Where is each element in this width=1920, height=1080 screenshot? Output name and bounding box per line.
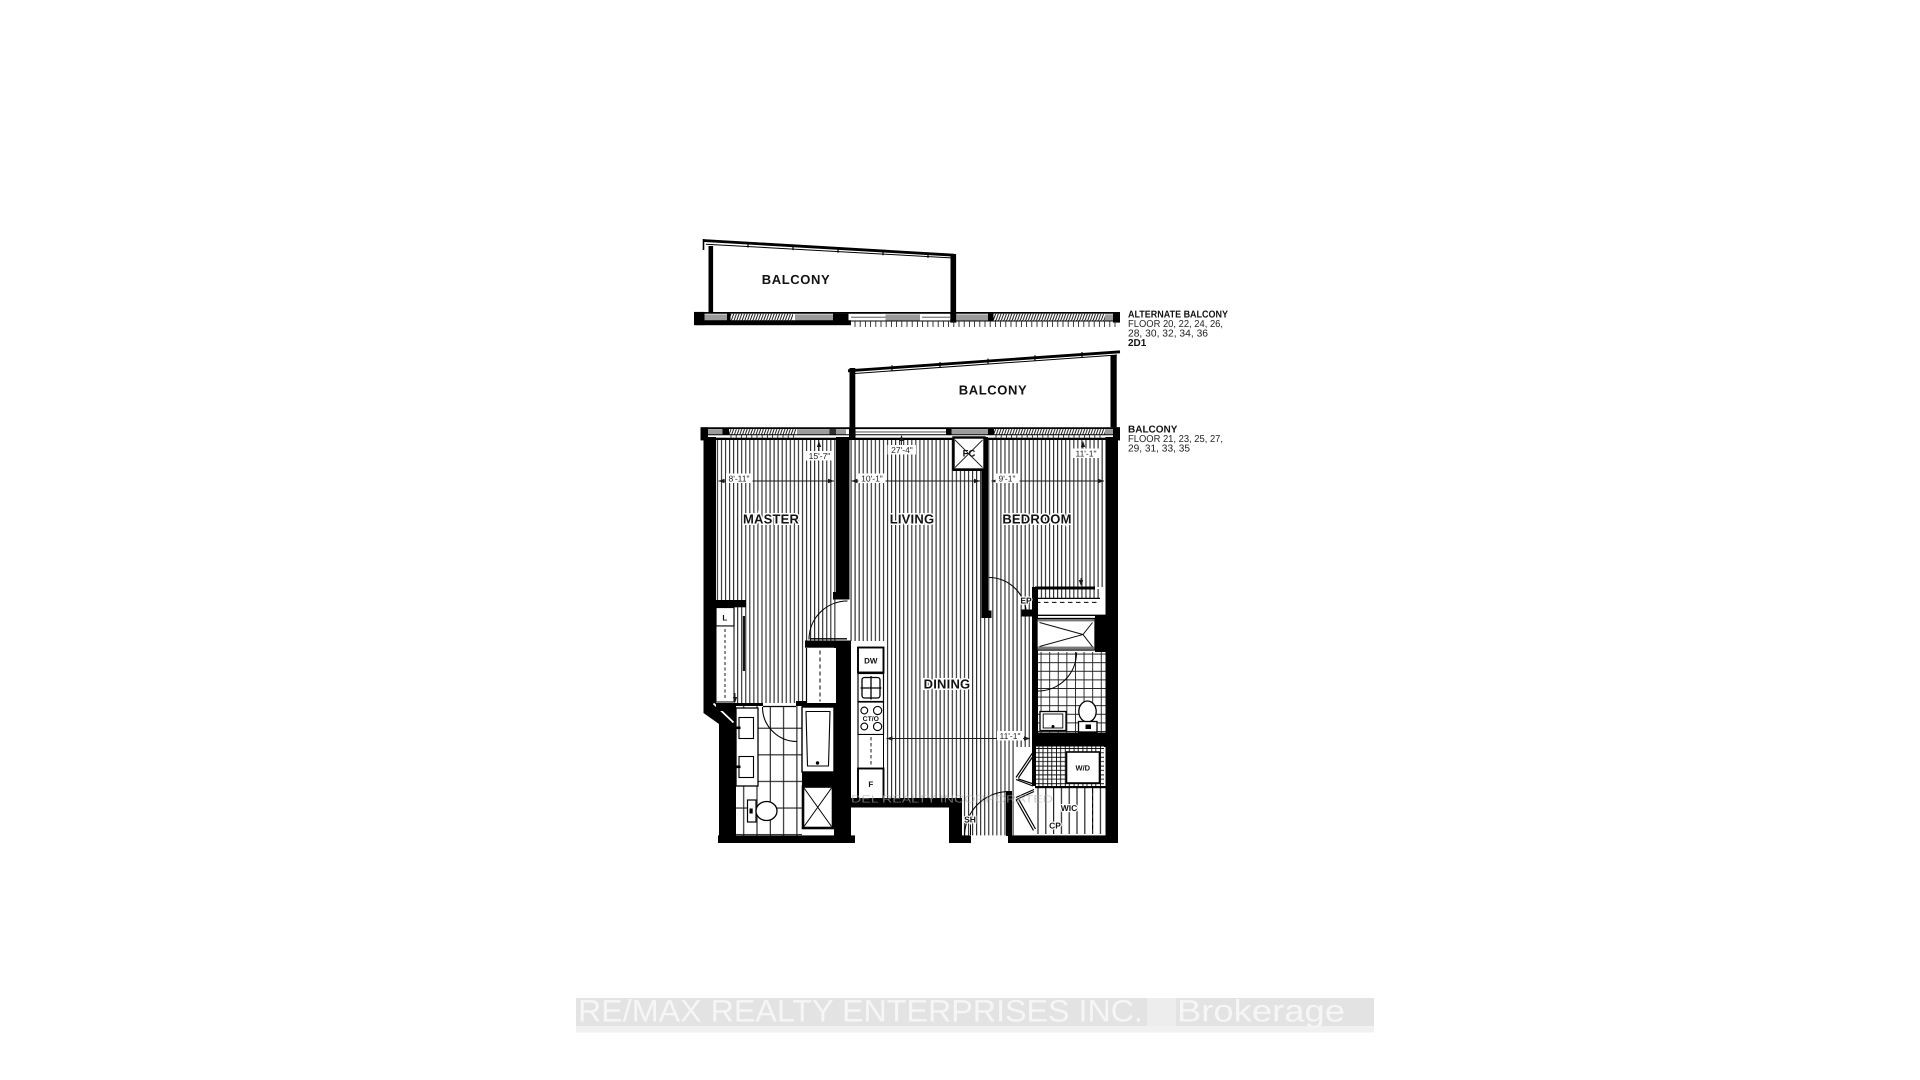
svg-text:BALCONY: BALCONY — [959, 383, 1027, 398]
svg-text:29, 31, 33, 35: 29, 31, 33, 35 — [1128, 444, 1190, 455]
svg-text:9'-1": 9'-1" — [999, 474, 1016, 484]
svg-text:DINING: DINING — [924, 677, 971, 692]
svg-text:WIC: WIC — [1061, 803, 1078, 813]
svg-text:F: F — [868, 780, 873, 789]
svg-text:CP: CP — [1049, 821, 1061, 831]
svg-text:BEDROOM: BEDROOM — [1002, 512, 1071, 527]
svg-text:10'-1": 10'-1" — [861, 474, 883, 484]
svg-text:LIVING: LIVING — [890, 512, 935, 527]
svg-text:SH: SH — [964, 815, 976, 825]
svg-text:DEL REALTY INCORPORATED: DEL REALTY INCORPORATED — [851, 794, 1054, 806]
svg-text:Brokerage: Brokerage — [1177, 994, 1345, 1029]
svg-text:BALCONY: BALCONY — [762, 272, 830, 287]
svg-text:MASTER: MASTER — [743, 512, 800, 527]
svg-text:2D1: 2D1 — [1128, 338, 1147, 349]
svg-text:L: L — [722, 614, 727, 623]
svg-text:11'-1": 11'-1" — [999, 731, 1020, 741]
svg-text:FC: FC — [963, 449, 976, 460]
svg-text:15'-7": 15'-7" — [809, 451, 831, 461]
svg-text:11'-1": 11'-1" — [1075, 449, 1096, 459]
svg-text:CT/O: CT/O — [863, 716, 879, 723]
svg-text:DW: DW — [864, 657, 878, 666]
svg-text:RE/MAX REALTY ENTERPRISES INC.: RE/MAX REALTY ENTERPRISES INC. — [578, 994, 1143, 1029]
svg-text:W/D: W/D — [1076, 764, 1091, 773]
svg-text:EP: EP — [1020, 596, 1032, 606]
svg-text:27'-4": 27'-4" — [891, 445, 913, 455]
svg-text:8'-11": 8'-11" — [728, 474, 749, 484]
